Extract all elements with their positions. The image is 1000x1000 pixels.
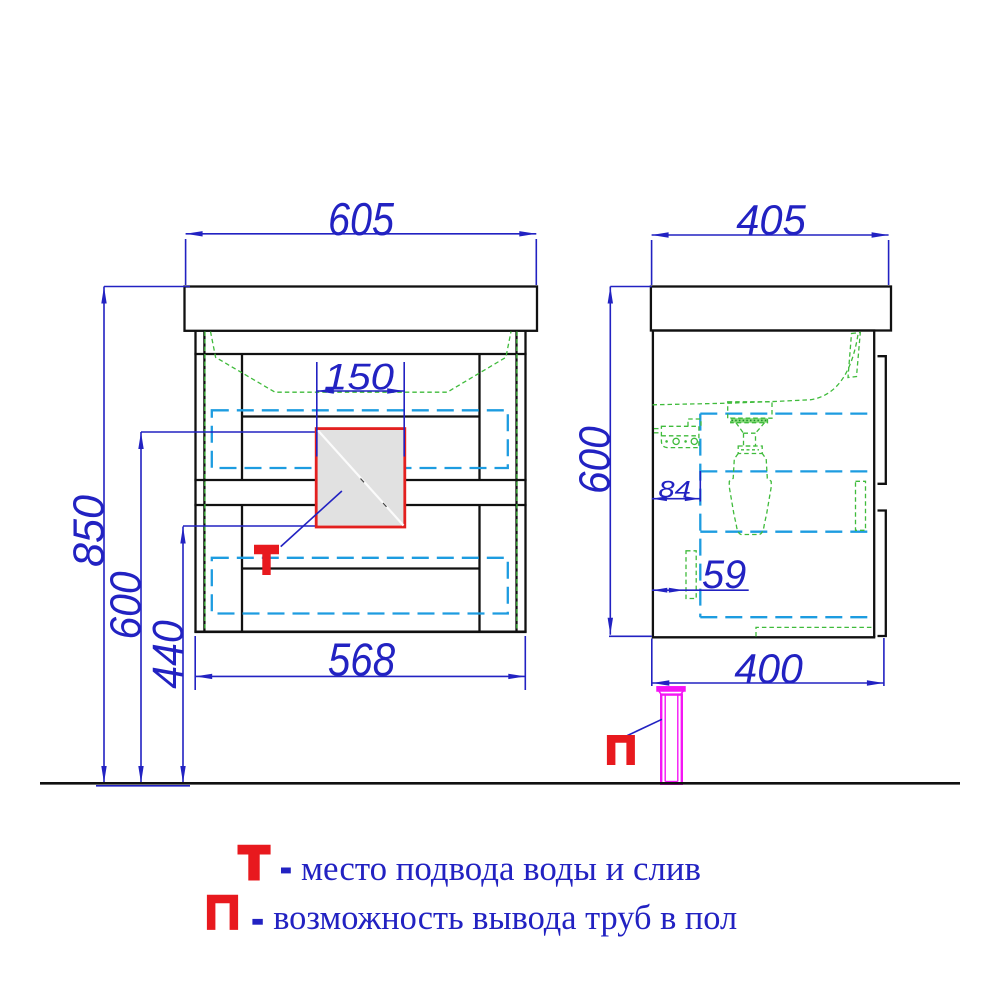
svg-text:400: 400	[734, 645, 803, 692]
svg-text:150: 150	[324, 356, 394, 397]
svg-text:605: 605	[328, 193, 394, 245]
svg-text:440: 440	[144, 620, 193, 689]
svg-text:84: 84	[658, 477, 691, 504]
svg-text:600: 600	[571, 426, 620, 494]
svg-text:405: 405	[736, 196, 807, 244]
svg-text:568: 568	[328, 634, 396, 686]
svg-text:возможность вывода труб в пол: возможность вывода труб в пол	[273, 898, 737, 937]
svg-text:59: 59	[702, 553, 746, 597]
svg-text:850: 850	[64, 494, 113, 567]
svg-text:место подвода воды и слив: место подвода воды и слив	[301, 849, 701, 888]
